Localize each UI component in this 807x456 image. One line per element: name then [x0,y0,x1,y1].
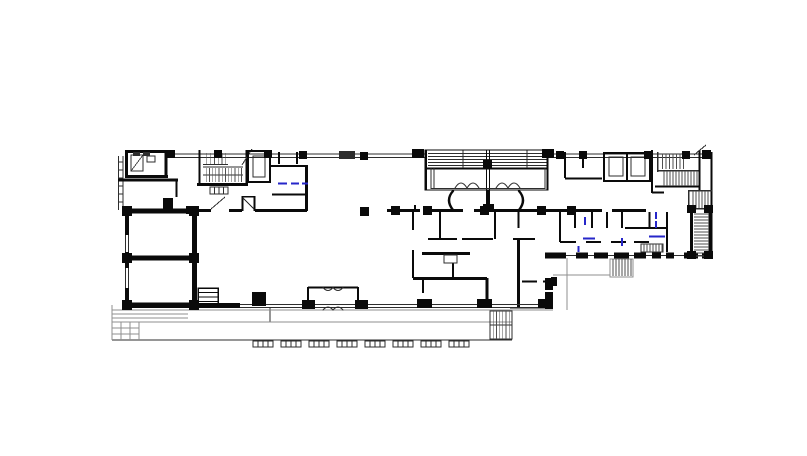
sidewalk-tick-layer [253,341,469,347]
floor-plan-svg [0,0,807,456]
floor-plan-canvas [0,0,807,456]
column-fill-layer [122,149,713,310]
